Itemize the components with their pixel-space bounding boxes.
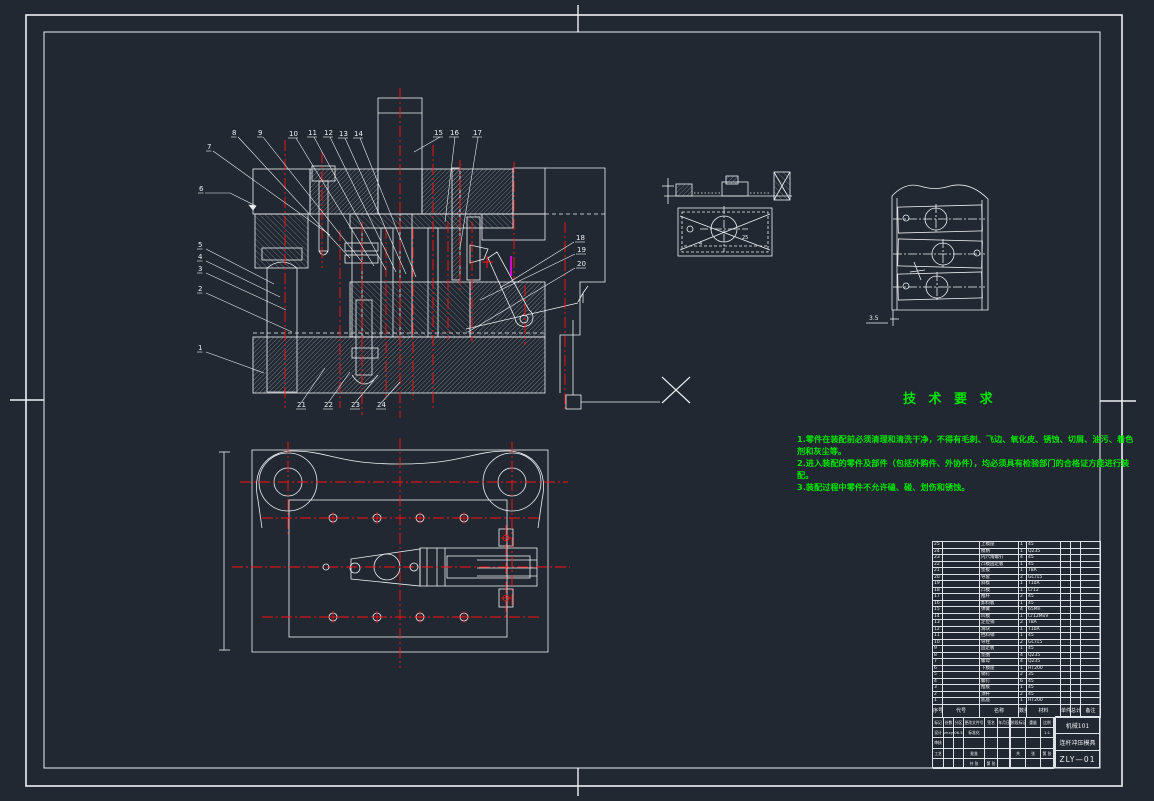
titleblock-cell: 批准 <box>964 749 985 759</box>
balloon-number: 10 <box>289 130 298 138</box>
titleblock-signature-grid: 标记处数分区更改文件号签名年月日设计zhxy06.5标准化审核工艺批准共 张第 … <box>932 717 1010 768</box>
balloon-number: 17 <box>473 129 482 137</box>
titleblock-cell: 设计 <box>933 728 944 738</box>
titleblock-stage-grid: 阶段标记重量比例1:1共张第 张 <box>1010 717 1055 768</box>
titleblock-cell: zhxy <box>944 728 954 738</box>
tech-note-line: 配。 <box>797 469 1113 481</box>
plan-view <box>219 450 548 652</box>
titleblock-org: 机械101 <box>1056 717 1099 734</box>
titleblock-cell: 共 张 <box>964 759 985 769</box>
balloon-number: 19 <box>577 246 586 254</box>
balloon-number: 13 <box>339 130 348 138</box>
balloon-number: 1 <box>198 344 202 352</box>
balloon-number: 18 <box>576 234 585 242</box>
tech-note-line: 剂和灰尘等。 <box>797 445 1113 457</box>
balloon-number: 6 <box>199 185 204 193</box>
titleblock-cell: 更改文件号 <box>964 718 985 728</box>
balloon-number: 15 <box>434 129 443 137</box>
balloon-number: 12 <box>324 129 333 137</box>
balloon-number: 14 <box>354 130 363 138</box>
titleblock-cell <box>985 749 998 759</box>
titleblock-cell <box>1026 738 1041 748</box>
balloon-number: 9 <box>258 129 262 137</box>
titleblock-cell <box>1011 738 1026 748</box>
titleblock-cell <box>954 749 964 759</box>
balloon-number: 7 <box>207 143 211 151</box>
tech-requirements-title: 技 术 要 求 <box>903 388 1103 407</box>
titleblock-cell: 共 <box>1011 749 1026 759</box>
balloon-number: 4 <box>198 253 203 261</box>
titleblock-cell <box>985 728 998 738</box>
plan-hole-crosses <box>327 512 511 623</box>
titleblock-cell: 阶段标记 <box>1011 718 1026 728</box>
plan-centerlines <box>232 438 570 668</box>
titleblock-cell: 工艺 <box>933 749 944 759</box>
tech-note-line: 1.零件在装配前必须清理和清洗干净，不得有毛刺、飞边、氧化皮、锈蚀、切屑、油污、… <box>797 433 1113 445</box>
titleblock-cell: 标记 <box>933 718 944 728</box>
titleblock-drawing-number: ZLY—01 <box>1056 751 1099 767</box>
cad-canvas: 7891011121314151617654321181920212223244… <box>0 0 1154 801</box>
balloon-number: 2 <box>198 285 202 293</box>
titleblock-cell <box>1011 728 1026 738</box>
titleblock-cell <box>985 738 998 748</box>
titleblock-cell: 张 <box>1026 749 1041 759</box>
titleblock-cell <box>1041 738 1054 748</box>
titleblock-cell: 第 张 <box>985 759 998 769</box>
titleblock-cell: 标准化 <box>964 728 985 738</box>
titleblock-cell: 比例 <box>1041 718 1054 728</box>
titleblock-cell: 重量 <box>1026 718 1041 728</box>
bom-table: 25上模座14524模柄1Q23523内六角螺钉44522凸模固定板14521垫… <box>932 541 1101 718</box>
titleblock-cell <box>944 738 954 748</box>
titleblock-cell <box>1026 728 1041 738</box>
balloon-number: 11 <box>308 129 317 137</box>
balloon-number: 20 <box>577 260 586 268</box>
dimension-label: 3.5 <box>869 315 879 322</box>
titleblock-cell: 审核 <box>933 738 944 748</box>
titleblock-cell: 签名 <box>985 718 998 728</box>
balloon-number: 22 <box>324 401 333 409</box>
balloon-number: 24 <box>377 401 386 409</box>
balloon-number: 23 <box>351 401 360 409</box>
titleblock-cell <box>1026 759 1041 769</box>
titleblock-cell: 分区 <box>954 718 964 728</box>
tech-note-line: 2.进入装配的零件及部件（包括外购件、外协件），均必须具有检验部门的合格证方能进… <box>797 457 1113 469</box>
titleblock-cell <box>1011 759 1026 769</box>
x-mark <box>662 377 690 403</box>
titleblock-cell <box>944 759 954 769</box>
balloon-number: 3 <box>198 265 202 273</box>
balloon-number: 16 <box>450 129 459 137</box>
titleblock-cell <box>1041 759 1054 769</box>
balloon-number: 21 <box>297 401 306 409</box>
main-section-view <box>253 98 690 409</box>
titleblock-cell <box>944 749 954 759</box>
balloon-number: 8 <box>232 129 236 137</box>
titleblock-right: 机械101 连杆冲压模具 ZLY—01 <box>1055 716 1100 768</box>
titleblock-cell <box>964 738 985 748</box>
titleblock-cell <box>954 759 964 769</box>
tech-note-line: 3.装配过程中零件不允许磕、碰、划伤和锈蚀。 <box>797 481 1113 493</box>
titleblock-cell <box>933 759 944 769</box>
aux-view-plate <box>662 172 792 256</box>
titleblock-drawing-title: 连杆冲压模具 <box>1056 734 1099 751</box>
titleblock-cell: 第 张 <box>1041 749 1054 759</box>
dimension-label: 4 <box>699 241 702 247</box>
aux-view-slotted-plate <box>866 185 988 326</box>
tech-requirements-notes: 1.零件在装配前必须清理和清洗干净，不得有毛刺、飞边、氧化皮、锈蚀、切屑、油污、… <box>797 433 1113 493</box>
titleblock-cell: 06.5 <box>954 728 964 738</box>
balloon-number: 5 <box>198 241 202 249</box>
titleblock-cell: 1:1 <box>1041 728 1054 738</box>
dimension-label: 25 <box>742 235 748 241</box>
titleblock-cell: 处数 <box>944 718 954 728</box>
titleblock-cell <box>954 738 964 748</box>
plan-bolt-holes <box>323 514 468 621</box>
